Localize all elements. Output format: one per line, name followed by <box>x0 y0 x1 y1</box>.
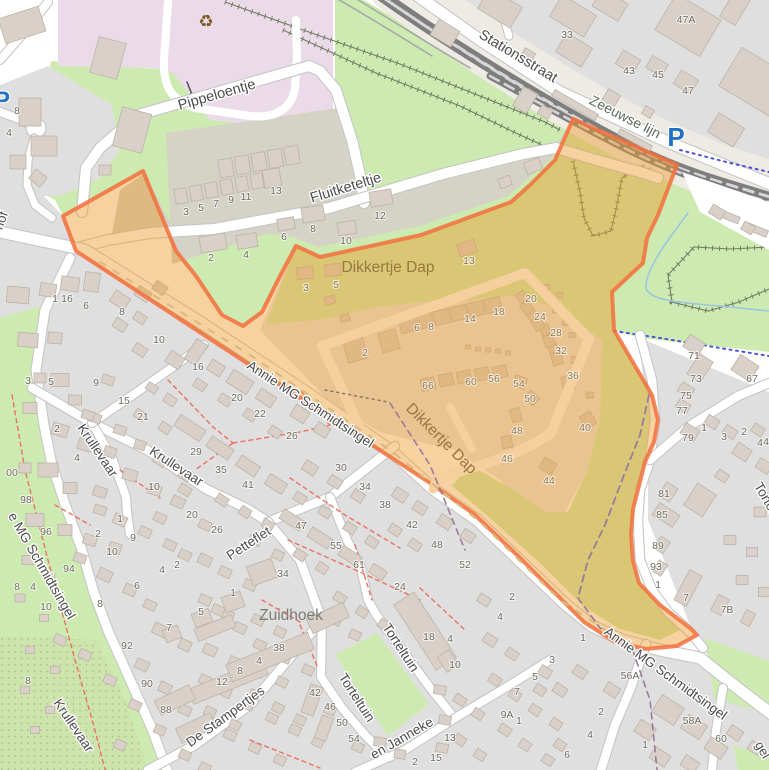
svg-text:24: 24 <box>394 581 406 593</box>
svg-text:1: 1 <box>117 513 123 525</box>
svg-text:6: 6 <box>134 580 140 592</box>
svg-text:2: 2 <box>54 423 60 435</box>
svg-text:48: 48 <box>431 539 443 551</box>
svg-text:48: 48 <box>511 425 523 437</box>
svg-text:8: 8 <box>25 675 31 687</box>
svg-text:8: 8 <box>237 665 243 677</box>
svg-text:45: 45 <box>652 69 664 81</box>
svg-text:43: 43 <box>623 65 635 77</box>
svg-text:41: 41 <box>242 479 254 491</box>
svg-text:38: 38 <box>379 499 391 511</box>
svg-text:47: 47 <box>682 85 694 97</box>
svg-text:30: 30 <box>335 462 347 474</box>
svg-text:98: 98 <box>20 494 32 506</box>
svg-text:13: 13 <box>270 185 282 197</box>
svg-text:10: 10 <box>40 601 52 613</box>
svg-text:21: 21 <box>137 411 149 423</box>
svg-text:75: 75 <box>680 390 692 402</box>
svg-text:4: 4 <box>447 633 453 645</box>
svg-text:4: 4 <box>6 127 12 139</box>
svg-text:85: 85 <box>656 509 668 521</box>
svg-text:1: 1 <box>580 632 586 644</box>
svg-text:2: 2 <box>412 756 418 768</box>
svg-text:94: 94 <box>63 563 75 575</box>
svg-text:60: 60 <box>715 733 727 745</box>
svg-text:29: 29 <box>190 446 202 458</box>
svg-text:32: 32 <box>555 345 567 357</box>
svg-text:26: 26 <box>286 430 298 442</box>
svg-text:5: 5 <box>48 376 54 388</box>
svg-text:11: 11 <box>241 191 252 203</box>
svg-text:1: 1 <box>230 587 236 599</box>
svg-text:7B: 7B <box>721 604 734 616</box>
svg-text:8: 8 <box>97 598 103 610</box>
svg-text:3: 3 <box>721 431 727 443</box>
svg-text:20: 20 <box>525 293 537 305</box>
svg-text:3: 3 <box>549 654 555 666</box>
svg-text:4: 4 <box>30 581 36 593</box>
svg-text:P: P <box>0 87 10 114</box>
svg-text:15: 15 <box>118 395 130 407</box>
svg-text:44: 44 <box>543 475 555 487</box>
svg-text:7: 7 <box>683 592 689 604</box>
svg-text:33: 33 <box>561 29 573 41</box>
svg-text:8: 8 <box>428 321 434 333</box>
svg-text:67: 67 <box>746 373 758 385</box>
svg-text:56: 56 <box>488 373 500 385</box>
svg-text:9: 9 <box>228 194 234 206</box>
svg-text:4: 4 <box>159 564 165 576</box>
svg-text:4: 4 <box>497 611 503 623</box>
svg-text:2: 2 <box>95 528 101 540</box>
svg-text:28: 28 <box>550 327 562 339</box>
svg-text:6: 6 <box>564 749 570 761</box>
svg-text:47: 47 <box>295 520 307 532</box>
svg-text:40: 40 <box>579 422 591 434</box>
svg-text:10: 10 <box>153 334 165 346</box>
svg-text:4: 4 <box>763 436 769 448</box>
svg-text:8: 8 <box>14 581 20 593</box>
svg-text:10: 10 <box>148 481 160 493</box>
svg-text:2: 2 <box>741 426 747 438</box>
svg-text:4: 4 <box>74 452 80 464</box>
svg-text:54: 54 <box>513 378 525 390</box>
svg-text:13: 13 <box>463 255 475 267</box>
svg-text:55: 55 <box>330 540 342 552</box>
svg-text:5: 5 <box>333 279 339 291</box>
svg-text:14: 14 <box>464 313 476 325</box>
svg-text:4: 4 <box>243 249 249 261</box>
svg-text:12: 12 <box>216 676 228 688</box>
svg-text:73: 73 <box>690 373 702 385</box>
svg-text:1: 1 <box>516 715 522 727</box>
svg-text:3: 3 <box>303 282 309 294</box>
svg-text:50: 50 <box>336 717 348 729</box>
svg-text:6: 6 <box>83 300 89 312</box>
svg-text:1: 1 <box>52 293 58 305</box>
svg-text:15: 15 <box>430 752 442 764</box>
svg-text:1: 1 <box>655 579 661 591</box>
svg-text:9A: 9A <box>501 709 514 721</box>
svg-text:7: 7 <box>166 622 172 634</box>
svg-text:42: 42 <box>406 519 418 531</box>
svg-text:2: 2 <box>598 706 604 718</box>
svg-text:38: 38 <box>273 642 285 654</box>
svg-text:16: 16 <box>192 361 204 373</box>
svg-text:96: 96 <box>40 526 52 538</box>
svg-text:42: 42 <box>309 687 321 699</box>
svg-text:88: 88 <box>160 704 172 716</box>
svg-text:35: 35 <box>215 464 227 476</box>
svg-text:24: 24 <box>534 311 546 323</box>
svg-text:3: 3 <box>25 375 31 387</box>
svg-text:6: 6 <box>281 231 287 243</box>
svg-text:18: 18 <box>423 631 435 643</box>
svg-text:♻: ♻ <box>198 12 213 31</box>
svg-text:34: 34 <box>277 568 289 580</box>
svg-text:52: 52 <box>459 559 471 571</box>
svg-text:2: 2 <box>174 559 180 571</box>
svg-text:10: 10 <box>106 546 118 558</box>
svg-text:58A: 58A <box>683 715 702 727</box>
svg-text:4: 4 <box>587 729 593 741</box>
svg-text:5: 5 <box>198 202 204 214</box>
svg-text:36: 36 <box>567 370 579 382</box>
svg-text:60: 60 <box>465 376 477 388</box>
svg-text:1: 1 <box>642 739 648 751</box>
svg-text:90: 90 <box>141 678 153 690</box>
svg-text:8: 8 <box>14 105 20 117</box>
svg-text:6: 6 <box>414 322 420 334</box>
svg-text:Zuidhoek: Zuidhoek <box>259 607 323 624</box>
svg-text:4: 4 <box>256 655 262 667</box>
svg-text:46: 46 <box>501 453 513 465</box>
svg-text:8: 8 <box>119 306 125 318</box>
svg-text:00: 00 <box>6 467 18 479</box>
svg-text:56A: 56A <box>621 670 640 682</box>
svg-text:P: P <box>667 122 684 152</box>
svg-text:46: 46 <box>324 701 336 713</box>
svg-text:Dikkertje Dap: Dikkertje Dap <box>341 259 434 276</box>
svg-text:81: 81 <box>658 488 670 500</box>
svg-text:16: 16 <box>61 293 73 305</box>
svg-text:18: 18 <box>493 306 505 318</box>
svg-text:13: 13 <box>444 732 456 744</box>
svg-text:92: 92 <box>121 640 133 652</box>
svg-text:71: 71 <box>688 350 700 362</box>
svg-text:4: 4 <box>757 437 763 449</box>
svg-text:10: 10 <box>340 235 352 247</box>
svg-text:79: 79 <box>682 432 694 444</box>
svg-text:1: 1 <box>701 422 707 434</box>
svg-text:93: 93 <box>650 561 662 573</box>
svg-text:77: 77 <box>676 405 688 417</box>
svg-text:20: 20 <box>186 509 198 521</box>
svg-text:66: 66 <box>422 380 434 392</box>
svg-text:5: 5 <box>198 606 204 618</box>
svg-text:54: 54 <box>348 733 360 745</box>
svg-text:2: 2 <box>509 591 515 603</box>
svg-text:22: 22 <box>254 408 266 420</box>
svg-text:3: 3 <box>183 206 189 218</box>
svg-text:8: 8 <box>310 223 316 235</box>
svg-text:47A: 47A <box>677 14 696 26</box>
svg-text:26: 26 <box>211 524 223 536</box>
svg-text:34: 34 <box>359 481 371 493</box>
svg-text:12: 12 <box>374 210 386 222</box>
svg-text:2: 2 <box>362 347 368 359</box>
svg-text:20: 20 <box>231 392 243 404</box>
svg-text:2: 2 <box>208 252 214 264</box>
svg-text:61: 61 <box>353 559 365 571</box>
svg-text:50: 50 <box>524 393 536 405</box>
svg-text:5: 5 <box>532 671 538 683</box>
svg-text:10: 10 <box>449 659 461 671</box>
svg-text:7: 7 <box>514 686 520 698</box>
svg-text:7: 7 <box>213 198 219 210</box>
svg-text:9: 9 <box>93 377 99 389</box>
svg-text:9: 9 <box>130 532 136 544</box>
svg-text:89: 89 <box>652 540 664 552</box>
